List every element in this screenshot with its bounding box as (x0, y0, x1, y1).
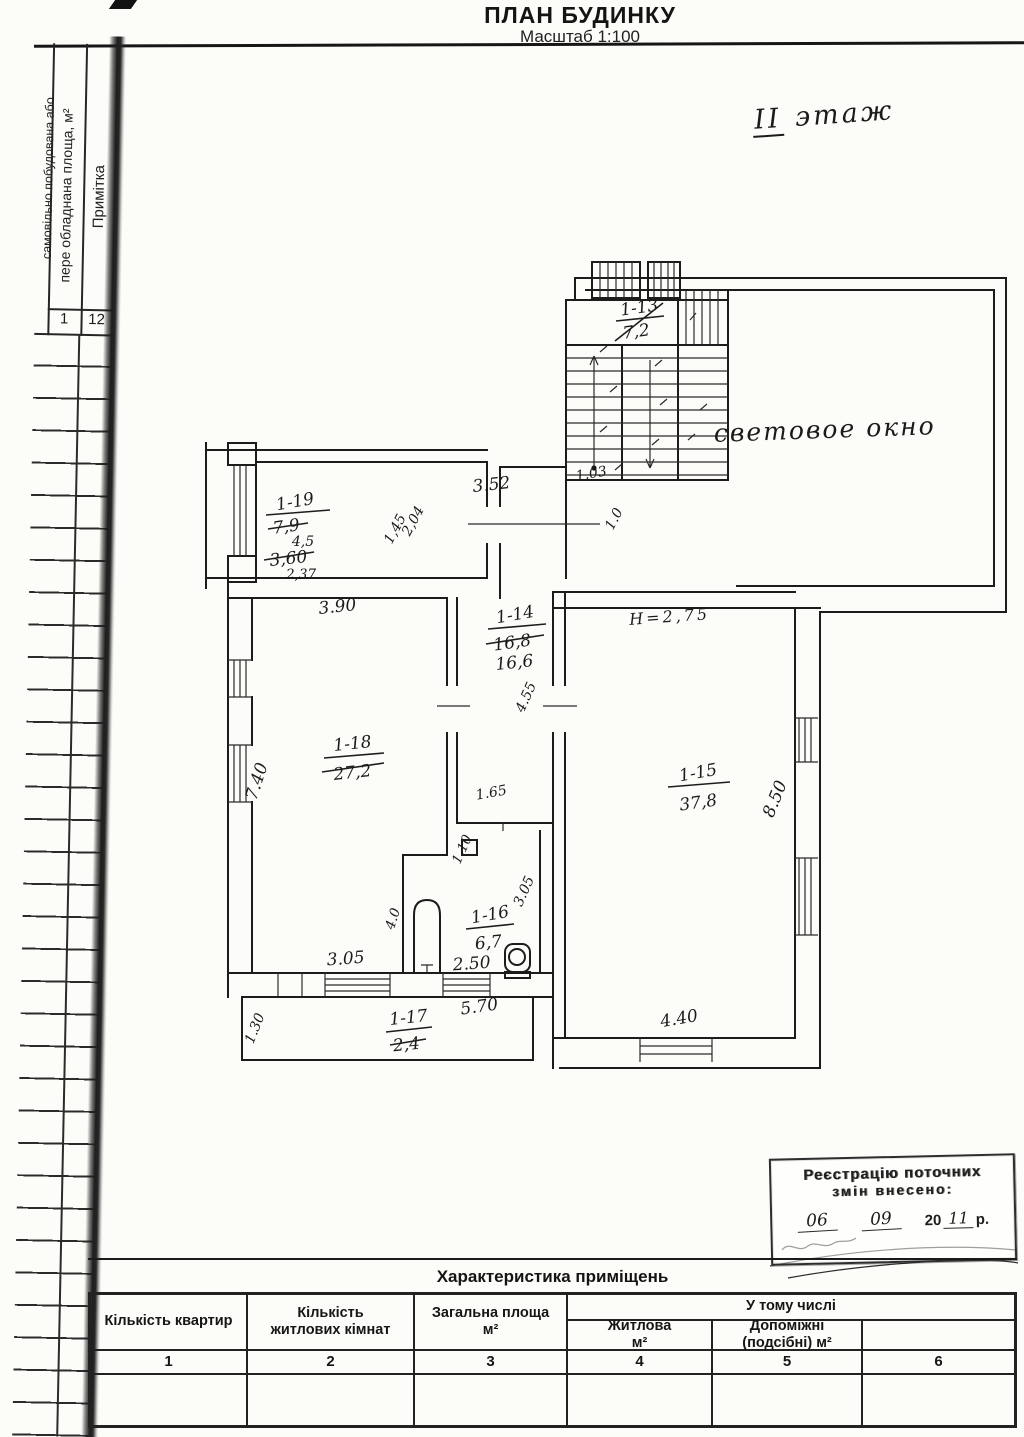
characteristics-section: Характеристика приміщень Кількість кварт… (88, 1258, 1017, 1428)
col-header-auxiliary: Допоміжні (подсібні) м² (712, 1320, 862, 1350)
col5-line1: Допоміжні (750, 1318, 825, 1335)
stairwell (566, 262, 728, 480)
col2-line1: Кількість (297, 1305, 363, 1322)
dim-r19-door: 1.0 (602, 505, 627, 532)
room-17-label: 1-17 (388, 1006, 428, 1030)
empty-cell (567, 1374, 712, 1426)
stamp-date: 06 09 20 11 р. (772, 1206, 1014, 1232)
room-16-area: 6,7 (474, 932, 503, 955)
bathtub-fixture (414, 900, 440, 972)
empty-cell (414, 1374, 567, 1426)
dim-r17-top: 5.70 (459, 994, 499, 1019)
col-header-apartments: Кількість квартир (90, 1294, 247, 1350)
room-17-area: 2,4 (391, 1034, 421, 1057)
col-header-living-rooms: Кількість житлових кімнат (247, 1294, 414, 1350)
group-header-including: У тому числі (567, 1294, 1015, 1320)
col-header-blank (862, 1320, 1015, 1350)
col3-line2: м² (483, 1322, 499, 1339)
dim-r16-left: 4.0 (382, 906, 404, 933)
col-num: 4 (567, 1350, 712, 1374)
col-num: 6 (862, 1350, 1015, 1374)
room-14-area-cur: 16,6 (495, 651, 535, 675)
scanned-floor-plan-page: ПЛАН БУДИНКУ Масштаб 1:100 самовільно по… (0, 0, 1024, 1437)
stamp-month: 09 (860, 1208, 901, 1231)
registration-stamp: Реєстрацію поточних змін внесено: 06 09 … (769, 1153, 1017, 1266)
col-num: 2 (247, 1350, 414, 1374)
col3-line1: Загальна площа (432, 1305, 549, 1322)
col-header-total-area: Загальна площа м² (414, 1294, 567, 1350)
stair-window (648, 262, 680, 298)
col4-line1: Житлова (608, 1318, 672, 1335)
col-num: 1 (90, 1350, 247, 1374)
dim-r14-side: 4.55 (512, 680, 540, 716)
empty-cell (247, 1374, 414, 1426)
dim-r15-right: 8.50 (759, 778, 792, 821)
dim-r16-bottom: 2.50 (451, 953, 491, 976)
dim-r16-nook: 1.10 (449, 832, 476, 866)
stamp-century: 20 (925, 1212, 942, 1229)
dim-corridor-top: 3.52 (472, 473, 512, 497)
stamp-year-suffix: р. (976, 1211, 990, 1228)
hall-walls (543, 592, 577, 1038)
characteristics-table: Кількість квартир Кількість житлових кім… (88, 1292, 1017, 1428)
dim-r16-side: 3.05 (511, 874, 538, 909)
dim-r18-bottom: 3.05 (326, 948, 365, 971)
room-15-area: 37,8 (678, 790, 718, 815)
col-header-living: Житлова м² (567, 1320, 712, 1350)
col-num: 3 (414, 1350, 567, 1374)
col2-line2: житлових кімнат (271, 1322, 391, 1339)
empty-cell (712, 1374, 862, 1426)
stamp-day: 06 (797, 1210, 838, 1233)
dim-stairs-bottom: 1.03 (575, 463, 609, 484)
dim-r14-bottom: 1.65 (475, 782, 509, 803)
dim-r17-left: 1.30 (242, 1011, 269, 1046)
room-18-label: 1-18 (332, 732, 372, 756)
dim-r15-bottom: 4.40 (658, 1006, 700, 1032)
dim-r18-top: 3.90 (318, 595, 358, 619)
room-15-label: 1-15 (678, 760, 719, 786)
room-19-area-cur: 2,37 (285, 567, 316, 583)
empty-cell (862, 1374, 1015, 1426)
empty-cell (90, 1374, 247, 1426)
light-well-note: световое окно (713, 411, 936, 448)
stamp-year-hand: 11 (943, 1208, 974, 1229)
col-num: 5 (712, 1350, 862, 1374)
characteristics-title: Характеристика приміщень (88, 1267, 1017, 1287)
room-18-area: 27,2 (332, 761, 373, 785)
stamp-year: 20 11 р. (924, 1208, 989, 1229)
section-rule (88, 1258, 1017, 1260)
toilet-fixture (505, 944, 530, 978)
room-14-label: 1-14 (495, 602, 536, 628)
